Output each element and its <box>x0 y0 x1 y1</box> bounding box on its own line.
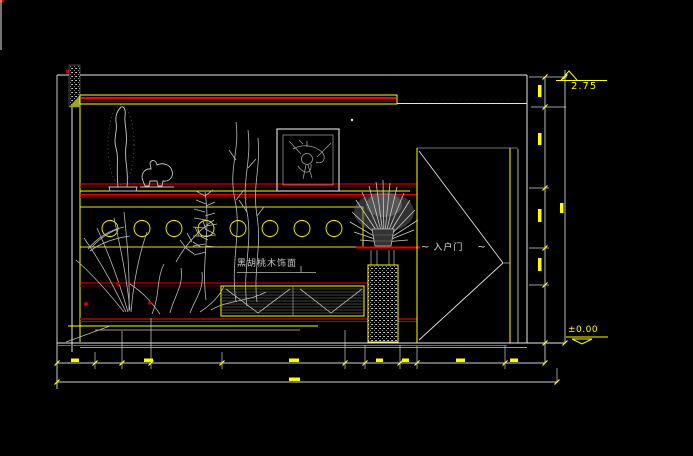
dimension-ticks <box>55 361 560 385</box>
material-label: 黑胡桃木饰面 <box>237 260 297 269</box>
hatched-column <box>69 65 80 107</box>
walls-and-ceiling <box>57 75 527 389</box>
elevation-marker-floor <box>566 337 608 344</box>
dimension-right <box>529 70 568 363</box>
dot-mark <box>351 119 353 121</box>
door-tilde-left: ~ <box>421 243 429 253</box>
animal-figurine <box>140 161 174 187</box>
door-tilde-right: ~ <box>477 243 485 253</box>
dimension-ticks-right <box>543 75 568 346</box>
dimension-text-smudges-bottom <box>71 359 518 382</box>
soffit-band <box>80 95 527 104</box>
cad-canvas: 2.75 ±0.00 黑胡桃木饰面 ~ 入户门 ~ <box>0 0 693 456</box>
corner-marks <box>0 0 71 73</box>
cad-linework <box>0 0 693 456</box>
entry-door-label: ~ 入户门 ~ <box>421 243 507 253</box>
dimension-bottom <box>55 330 560 385</box>
circle-ornaments <box>102 221 342 237</box>
elevation-value-top: 2.75 <box>571 82 597 92</box>
ornamental-plants <box>76 122 266 314</box>
statue-sculpture <box>108 105 137 191</box>
bench-grille <box>221 286 364 316</box>
abstract-artwork <box>289 140 331 179</box>
shelf-band <box>80 184 417 197</box>
floor-lines <box>57 343 565 348</box>
picture-frame <box>277 119 353 191</box>
lower-trim-lines <box>68 283 417 330</box>
door-label-text: 入户门 <box>433 244 463 253</box>
dimension-text-smudges-right <box>538 85 564 271</box>
potted-plant-pedestal <box>350 180 420 342</box>
elevation-value-floor: ±0.00 <box>568 326 598 335</box>
